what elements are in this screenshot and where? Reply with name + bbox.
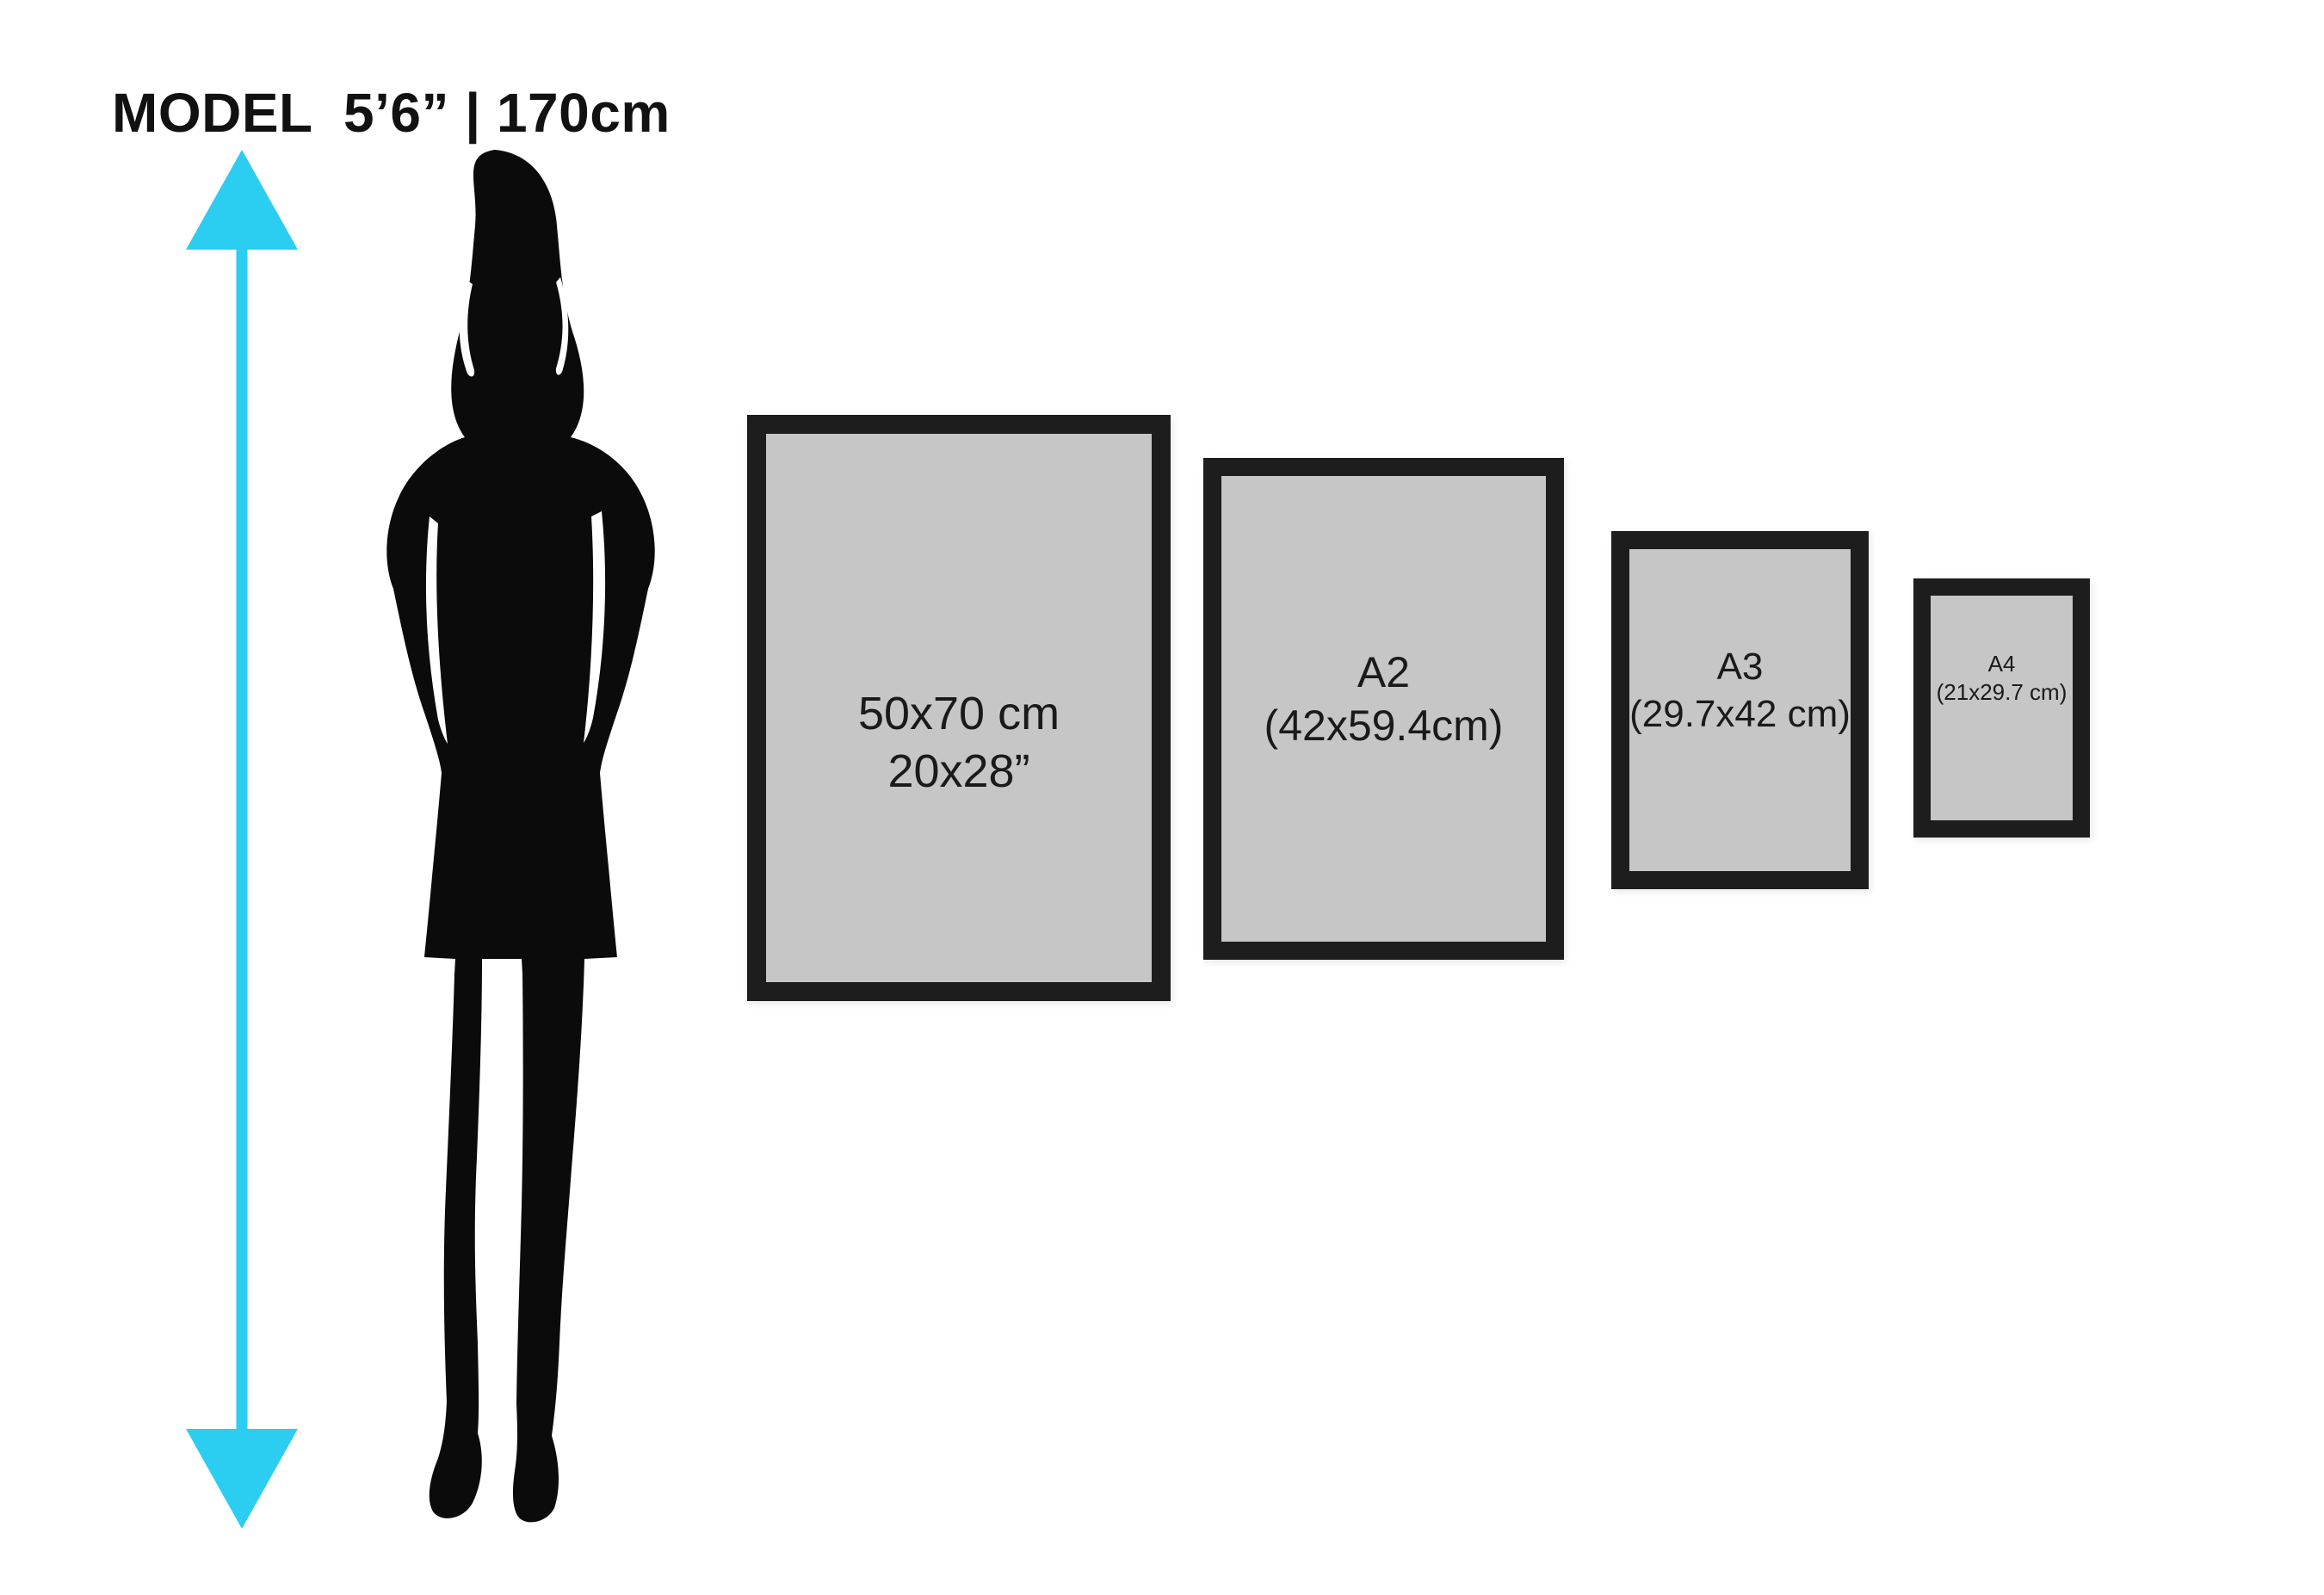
frame-size-label-line1: A2 xyxy=(1264,646,1504,699)
frame-matte xyxy=(1931,596,2073,820)
up-arrowhead-icon xyxy=(186,150,298,250)
frame-size-label: 50x70 cm 20x28” xyxy=(858,685,1060,801)
model-height-title: MODEL 5’6” | 170cm xyxy=(112,81,671,145)
frame-size-label-line1: A3 xyxy=(1629,644,1851,691)
frame-a3: A3 (29.7x42 cm) xyxy=(1611,531,1869,889)
size-guide-canvas: MODEL 5’6” | 170cm 50x70 cm 20x28” A2 (4… xyxy=(0,0,2324,1595)
frame-size-label-line2: (29.7x42 cm) xyxy=(1629,691,1851,739)
frame-size-label-line2: (42x59.4cm) xyxy=(1264,699,1504,752)
frame-50x70: 50x70 cm 20x28” xyxy=(747,415,1171,1001)
frame-a2: A2 (42x59.4cm) xyxy=(1203,458,1564,960)
arrow-shaft xyxy=(237,244,248,1434)
frame-size-label: A4 (21x29.7 cm) xyxy=(1937,650,2067,705)
frame-size-label-line2: (21x29.7 cm) xyxy=(1937,678,2067,706)
frame-size-label-line2: 20x28” xyxy=(858,743,1060,801)
frame-a4: A4 (21x29.7 cm) xyxy=(1913,578,2090,838)
frame-size-label: A2 (42x59.4cm) xyxy=(1264,646,1504,752)
frame-size-label: A3 (29.7x42 cm) xyxy=(1629,644,1851,738)
woman-silhouette xyxy=(340,146,693,1545)
frame-size-label-line1: A4 xyxy=(1937,650,2067,677)
height-arrow xyxy=(186,150,298,1529)
frame-size-label-line1: 50x70 cm xyxy=(858,685,1060,743)
down-arrowhead-icon xyxy=(186,1429,298,1529)
woman-silhouette-body xyxy=(386,150,654,1522)
